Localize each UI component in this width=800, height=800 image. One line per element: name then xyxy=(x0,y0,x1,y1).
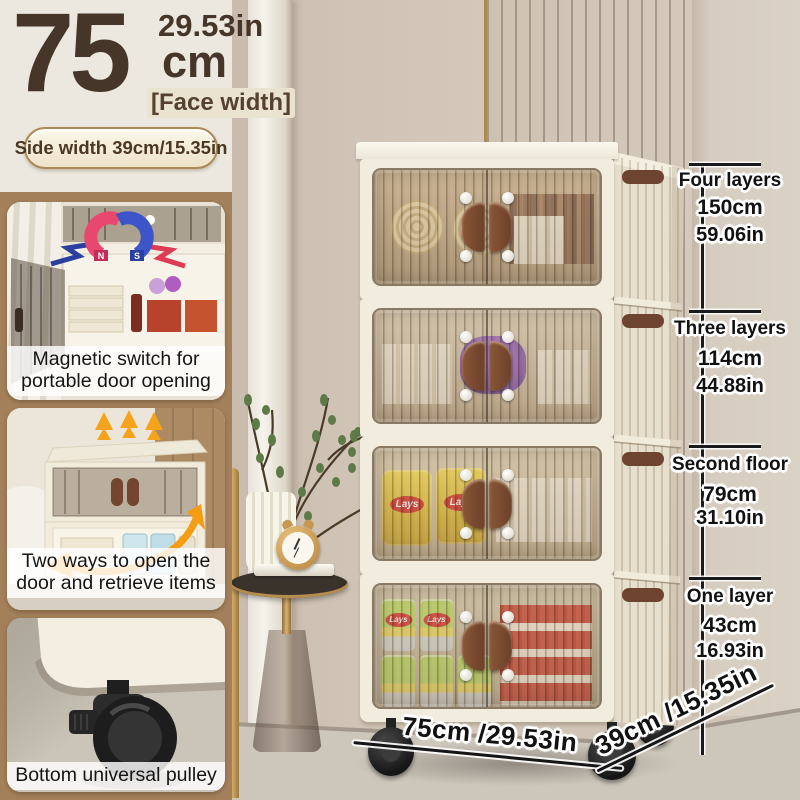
cabinet-tier-2 xyxy=(360,299,614,437)
inset-caption: Two ways to open thedoor and retrieve it… xyxy=(7,548,225,598)
measure-label: Four layers xyxy=(655,170,800,192)
svg-text:N: N xyxy=(98,251,105,261)
tier-3-door: Lays Lays xyxy=(372,446,602,561)
inset-caption: Bottom universal pulley xyxy=(7,762,225,790)
measure-tick xyxy=(689,310,761,313)
height-measurements: Four layers 150cm 59.06in Three layers 1… xyxy=(655,148,800,748)
tier-2-handle xyxy=(458,334,516,398)
measure-tick xyxy=(689,163,761,166)
storage-cabinet: Lays Lays Lays Lays xyxy=(360,142,614,722)
face-width-number: 75 xyxy=(12,0,127,117)
inset-bottom-pulley: Bottom universal pulley xyxy=(7,618,225,792)
measure-tick xyxy=(689,445,761,448)
tier-1-handle xyxy=(458,195,516,259)
measure-cm: 114cm xyxy=(655,347,800,371)
measure-cm: 43cm xyxy=(655,614,800,638)
side-width-pill: Side width 39cm/15.35in xyxy=(24,127,218,169)
alarm-clock xyxy=(276,526,320,570)
face-width-tag: [Face width] xyxy=(147,88,295,118)
cabinet-tier-1 xyxy=(360,159,614,299)
measure-in: 59.06in xyxy=(655,224,800,247)
tier-2-door xyxy=(372,308,602,424)
measure-in: 44.88in xyxy=(655,375,800,398)
measure-cm: 79cm xyxy=(655,483,800,507)
feature-insets: N S Magnetic switch forportable door ope… xyxy=(0,192,232,800)
svg-text:S: S xyxy=(134,251,140,261)
face-width-unit: cm xyxy=(162,36,227,88)
cabinet-lid xyxy=(356,142,618,159)
measure-in: 16.93in xyxy=(655,640,800,663)
tier-1-door xyxy=(372,168,602,286)
measure-label: Three layers xyxy=(655,318,800,340)
tier-4-door: Lays Lays xyxy=(372,583,602,709)
inset-caption: Magnetic switch forportable door opening xyxy=(7,346,225,396)
product-infographic: Lays Lays Lays Lays xyxy=(0,0,800,800)
tier-3-handle xyxy=(458,472,516,536)
measure-cm: 150cm xyxy=(655,196,800,220)
measure-label: Second floor xyxy=(655,454,800,476)
cabinet-tier-3: Lays Lays xyxy=(360,437,614,574)
inset-two-ways-open: Two ways to open thedoor and retrieve it… xyxy=(7,408,225,610)
inset-magnetic-switch: N S Magnetic switch forportable door ope… xyxy=(7,202,225,400)
measure-in: 31.10in xyxy=(655,507,800,530)
cabinet-tier-4: Lays Lays xyxy=(360,574,614,722)
tier-4-handle xyxy=(458,614,516,678)
measure-tick xyxy=(689,577,761,580)
side-table-stem xyxy=(282,592,291,634)
arrow-up-icon xyxy=(95,410,163,440)
measure-label: One layer xyxy=(655,586,800,608)
